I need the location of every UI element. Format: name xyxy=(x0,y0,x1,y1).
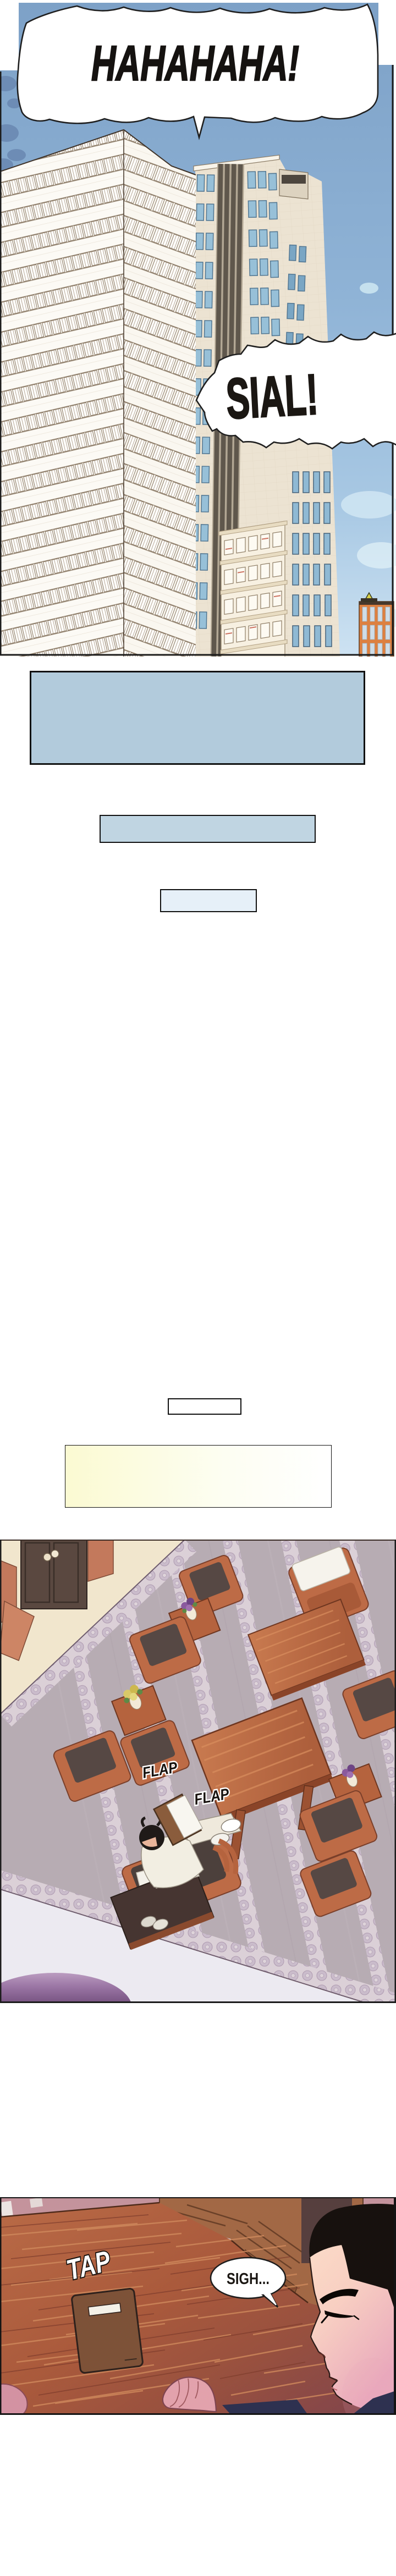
svg-text:HAHAHAHA!: HAHAHAHA! xyxy=(91,36,299,91)
svg-text:SIAL!: SIAL! xyxy=(224,363,320,432)
svg-text:SIGH...: SIGH... xyxy=(227,2270,269,2288)
